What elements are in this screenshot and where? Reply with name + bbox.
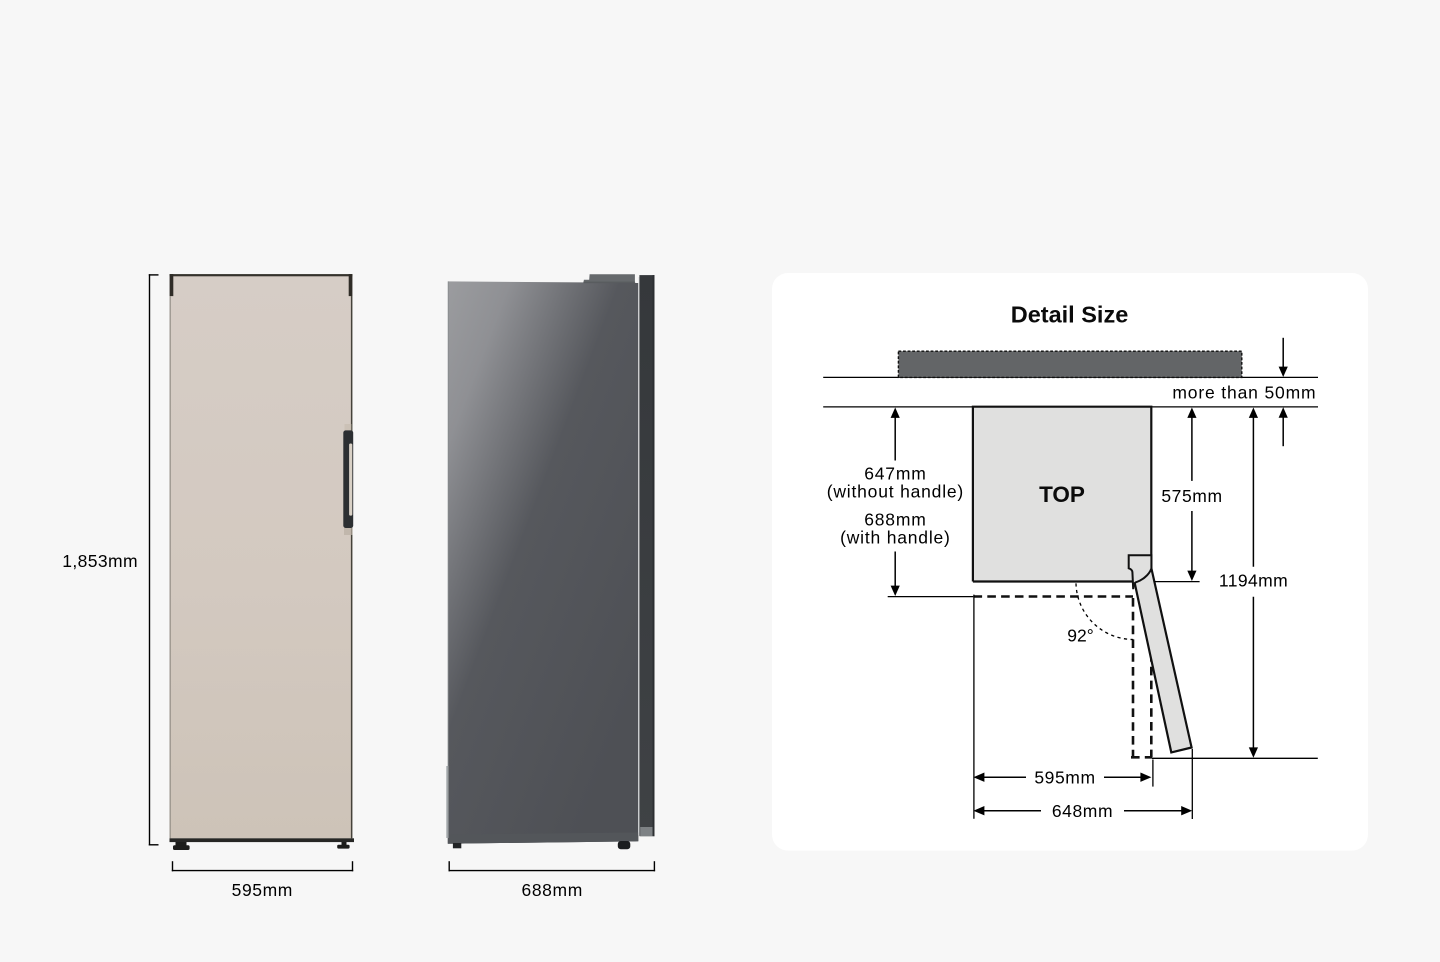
svg-text:(without handle): (without handle) (827, 481, 964, 501)
svg-text:Detail Size: Detail Size (1011, 302, 1129, 328)
svg-text:688mm: 688mm (522, 880, 583, 900)
svg-text:92°: 92° (1067, 626, 1093, 646)
svg-text:575mm: 575mm (1161, 486, 1222, 506)
svg-text:595mm: 595mm (232, 880, 293, 900)
svg-text:TOP: TOP (1039, 482, 1085, 507)
svg-text:1,853mm: 1,853mm (62, 551, 138, 571)
svg-text:1194mm: 1194mm (1219, 571, 1288, 591)
svg-text:647mm: 647mm (864, 463, 926, 483)
svg-text:more than 50mm: more than 50mm (1172, 383, 1316, 403)
svg-text:688mm: 688mm (864, 510, 926, 530)
svg-text:648mm: 648mm (1052, 801, 1113, 821)
svg-text:(with handle): (with handle) (840, 528, 951, 548)
svg-text:595mm: 595mm (1034, 768, 1095, 788)
